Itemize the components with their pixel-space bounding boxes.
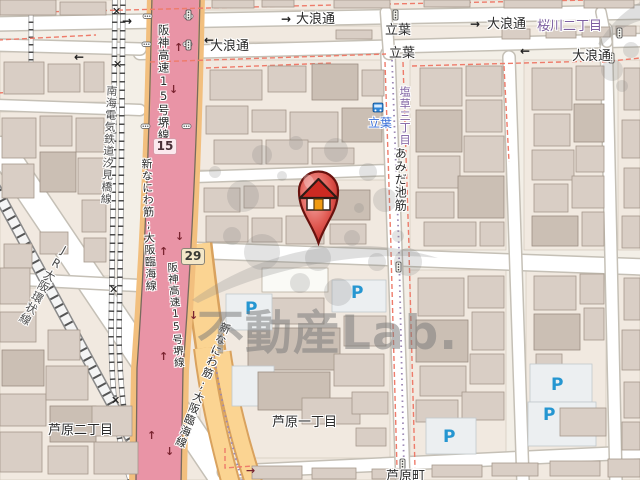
road-label-onami-dori: 大浪通	[572, 50, 611, 64]
place-label-sakuragawa-2chome: 桜川二丁目	[537, 20, 602, 34]
parking-icon: P	[543, 406, 555, 425]
oneway-arrow-icon: ←	[74, 51, 84, 64]
bus-stop-icon	[373, 103, 383, 112]
place-label-ashihara-cho: 芦原町	[386, 470, 425, 480]
oneway-arrow-icon: →	[470, 18, 480, 31]
road-label-onami-dori: 大浪通	[487, 18, 526, 32]
route-shield-15: 15	[153, 138, 177, 155]
parking-icon: P	[551, 376, 563, 395]
place-label-tachiba: 立葉	[389, 47, 415, 61]
lane-arrow-icon: ↑	[159, 351, 168, 363]
lane-arrow-icon: →	[246, 465, 255, 477]
oneway-arrow-icon: →	[281, 13, 291, 26]
oneway-arrow-icon: →	[122, 15, 132, 28]
lane-arrow-icon: ↓	[169, 84, 178, 96]
parking-icon: P	[443, 428, 455, 447]
bus-stop-label-tachiba: 立葉	[368, 117, 392, 130]
place-label-tachiba: 立葉	[385, 24, 411, 38]
lane-arrow-icon: ↓	[165, 446, 174, 458]
rail-crossing-icon: ✕	[113, 59, 122, 71]
rail-crossing-icon: ✕	[112, 6, 121, 18]
place-label-shiokusa-3chome: 塩草三丁目	[398, 86, 410, 146]
rail-crossing-icon: ✕	[109, 284, 118, 296]
lane-arrow-icon: ↑	[159, 246, 168, 258]
oneway-arrow-icon: ←	[204, 34, 214, 47]
road-label-hanshin-expressway: 阪神高速15号堺線	[157, 24, 170, 142]
route-shield-29: 29	[181, 248, 205, 265]
place-label-ashihara-2chome: 芦原二丁目	[48, 424, 113, 438]
lane-arrow-icon: ↑	[147, 430, 156, 442]
road-label-onami-dori: 大浪通	[296, 13, 335, 27]
lane-arrow-icon: ↓	[175, 231, 184, 243]
oneway-arrow-icon: ←	[520, 45, 530, 58]
rail-crossing-icon: ✕	[111, 395, 120, 407]
map-canvas[interactable]: 大浪通 大浪通 大浪通 大浪通 桜川二丁目 立葉 立葉 立葉 塩草三丁目 あみだ…	[0, 0, 640, 480]
watermark-brand-text: 不動産Lab.	[197, 294, 458, 363]
lane-arrow-icon: ↑	[174, 42, 183, 54]
place-label-ashihara-1chome: 芦原一丁目	[272, 416, 337, 430]
road-label-onami-dori: 大浪通	[210, 40, 249, 54]
road-label-amidaike-suji: あみだ池筋	[393, 147, 406, 212]
